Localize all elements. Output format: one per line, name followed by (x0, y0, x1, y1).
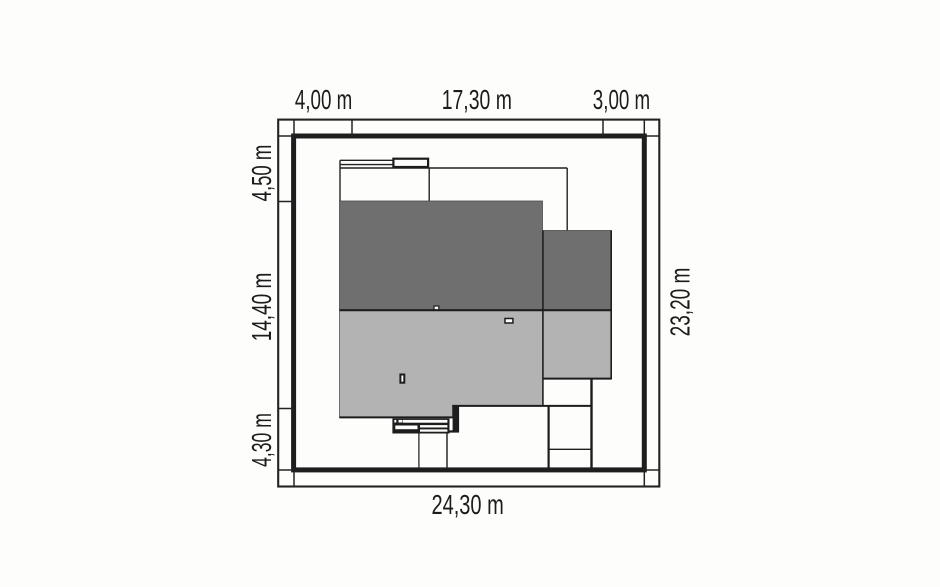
svg-text:24,30 m: 24,30 m (431, 489, 503, 520)
svg-text:17,30 m: 17,30 m (442, 84, 512, 115)
svg-text:4,50 m: 4,50 m (246, 145, 277, 202)
svg-text:4,00 m: 4,00 m (295, 84, 352, 115)
svg-text:4,30 m: 4,30 m (246, 413, 277, 467)
svg-text:3,00 m: 3,00 m (593, 84, 650, 115)
svg-text:14,40 m: 14,40 m (246, 273, 277, 342)
svg-text:23,20 m: 23,20 m (665, 268, 696, 337)
